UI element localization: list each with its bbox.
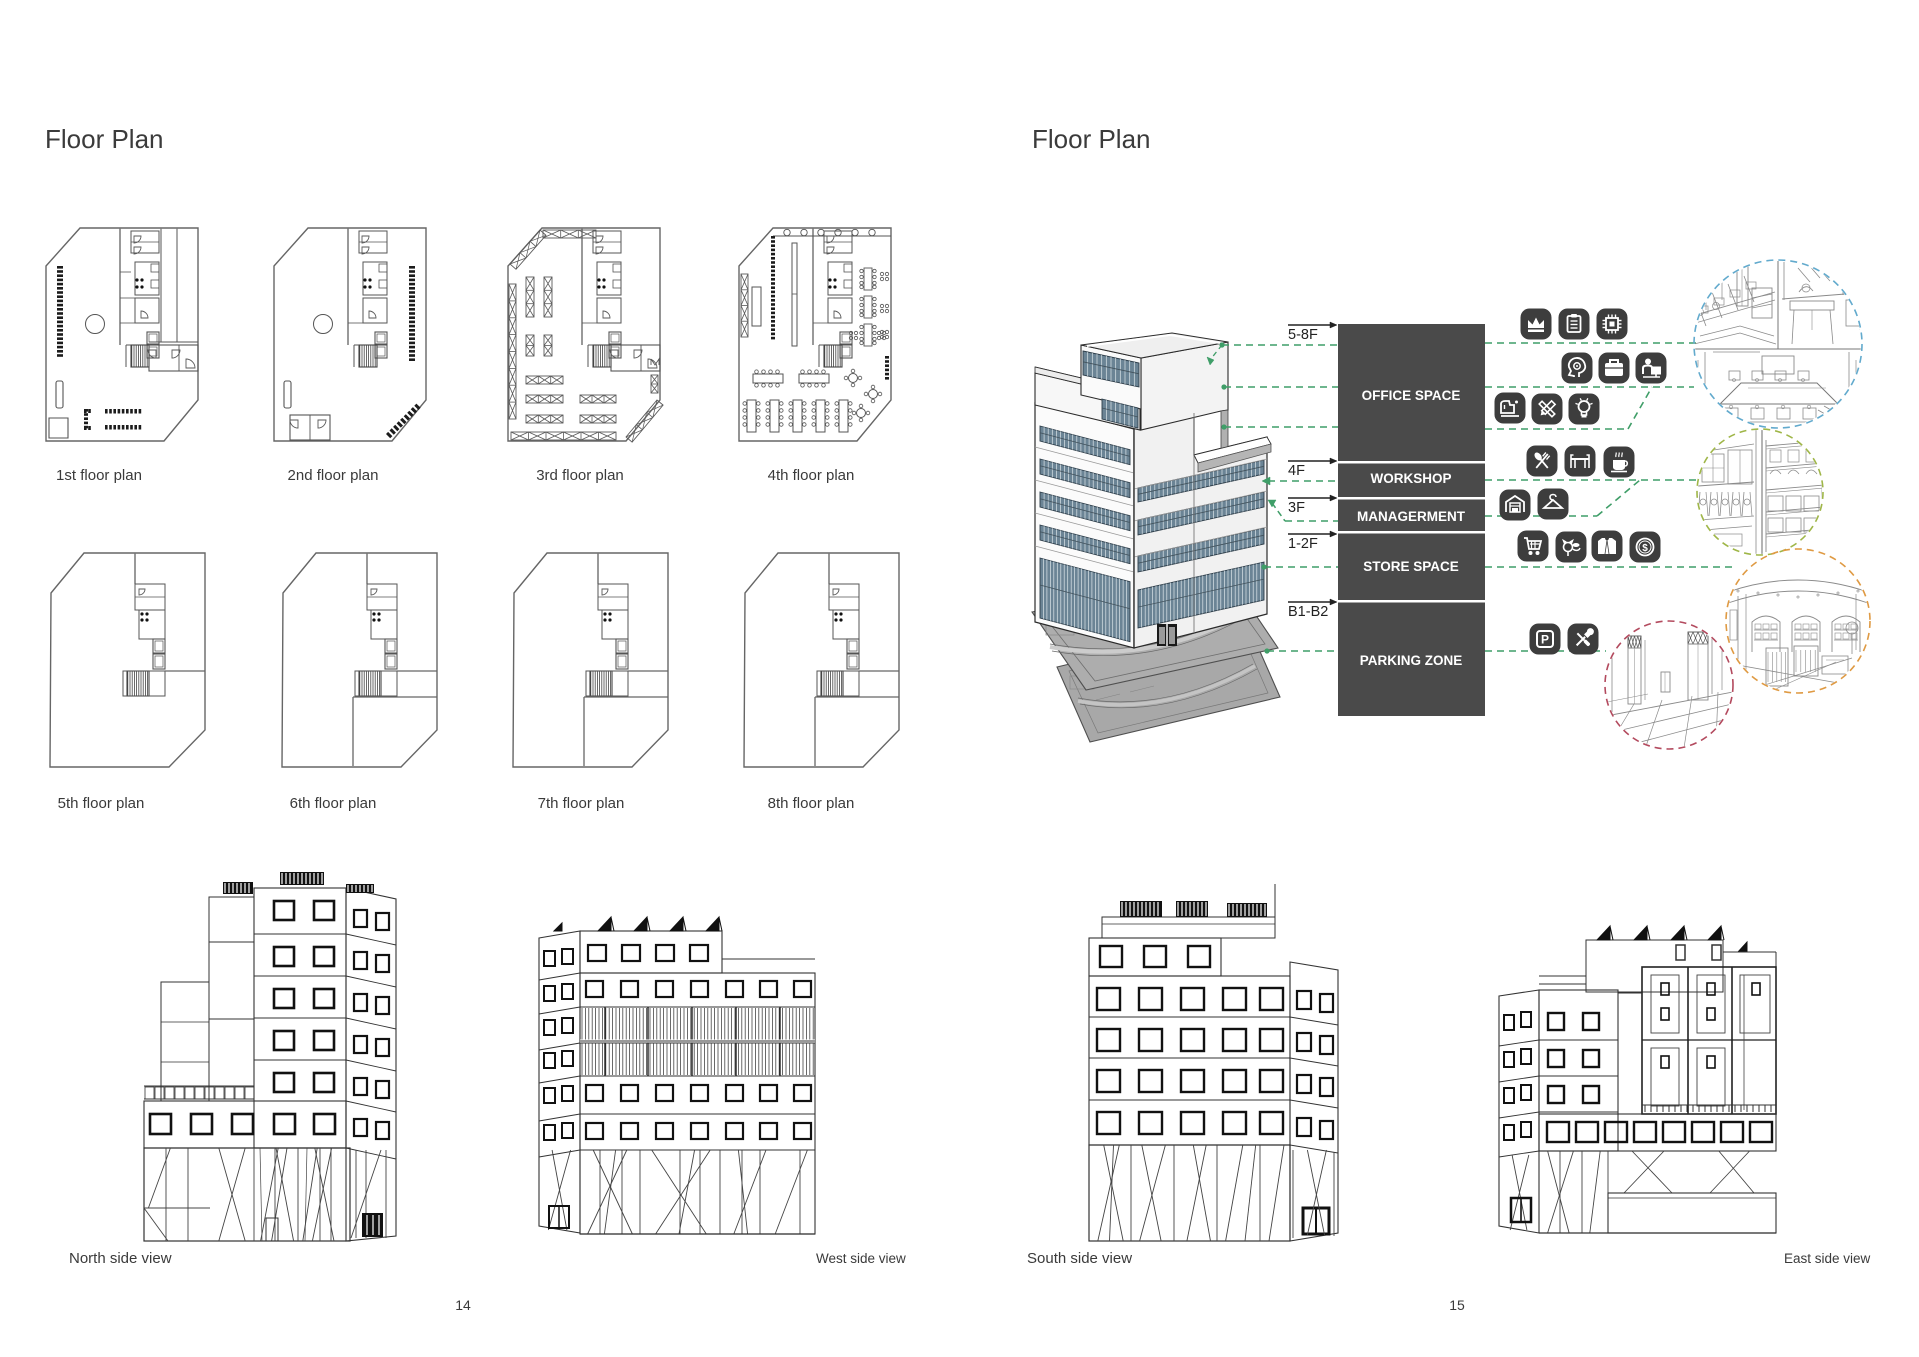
- svg-text:4F: 4F: [1288, 463, 1305, 479]
- svg-text:South side view: South side view: [1027, 1250, 1132, 1267]
- svg-text:East side view: East side view: [1784, 1251, 1871, 1266]
- svg-text:West side view: West side view: [816, 1251, 906, 1266]
- svg-text:6th floor plan: 6th floor plan: [290, 795, 377, 812]
- svg-text:Floor Plan: Floor Plan: [1032, 124, 1151, 154]
- svg-text:8th floor plan: 8th floor plan: [768, 795, 855, 812]
- svg-text:MANAGERMENT: MANAGERMENT: [1357, 509, 1466, 524]
- svg-text:3F: 3F: [1288, 500, 1305, 516]
- svg-text:OFFICE SPACE: OFFICE SPACE: [1362, 388, 1461, 403]
- svg-text:15: 15: [1449, 1297, 1465, 1313]
- svg-text:3rd floor plan: 3rd floor plan: [536, 467, 624, 484]
- svg-text:B1-B2: B1-B2: [1288, 604, 1328, 620]
- svg-text:5th floor plan: 5th floor plan: [58, 795, 145, 812]
- svg-text:P: P: [1541, 633, 1549, 647]
- svg-text:1st floor plan: 1st floor plan: [56, 467, 142, 484]
- svg-text:14: 14: [455, 1297, 471, 1313]
- svg-text:$: $: [1642, 543, 1648, 554]
- svg-text:1-2F: 1-2F: [1288, 536, 1318, 552]
- svg-text:North side view: North side view: [69, 1250, 172, 1267]
- svg-text:STORE SPACE: STORE SPACE: [1363, 559, 1459, 574]
- svg-text:7th floor plan: 7th floor plan: [538, 795, 625, 812]
- svg-text:Floor Plan: Floor Plan: [45, 124, 164, 154]
- svg-text:PARKING ZONE: PARKING ZONE: [1360, 653, 1463, 668]
- svg-text:2nd floor plan: 2nd floor plan: [288, 467, 379, 484]
- svg-text:5-8F: 5-8F: [1288, 327, 1318, 343]
- svg-text:WORKSHOP: WORKSHOP: [1371, 471, 1452, 486]
- svg-text:4th floor plan: 4th floor plan: [768, 467, 855, 484]
